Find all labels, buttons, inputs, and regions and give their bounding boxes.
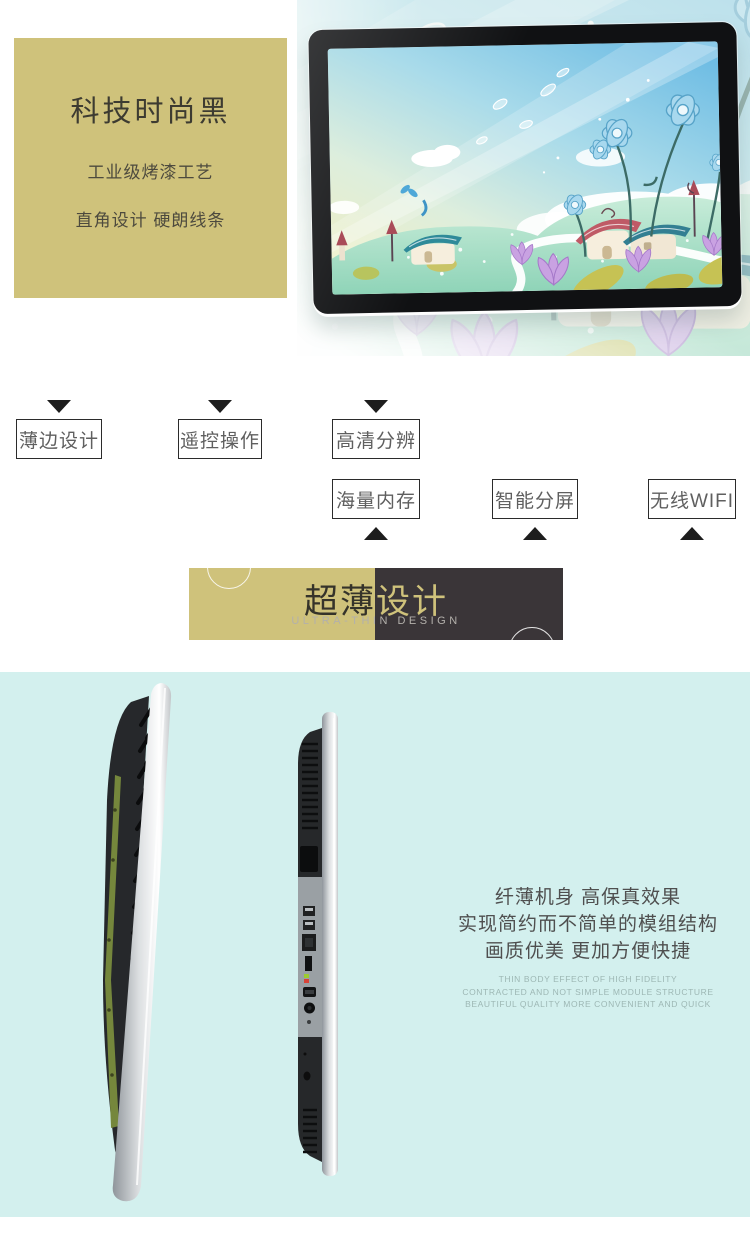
monitor-front-view: [308, 22, 741, 314]
thin-cn-line-1: 纤薄机身 高保真效果: [448, 884, 728, 911]
feature-tag-wifi: 无线WIFI: [648, 479, 736, 519]
banner-subtitle: ULTRA-THIN DESIGN: [189, 615, 563, 627]
down-triangle-icon: [47, 400, 71, 413]
thin-cn-line-3: 画质优美 更加方便快捷: [448, 938, 728, 965]
black-style-panel: 科技时尚黑 工业级烤漆工艺 直角设计 硬朗线条: [14, 38, 287, 298]
up-triangle-icon: [364, 527, 388, 540]
panel-subtitle-2: 直角设计 硬朗线条: [14, 206, 287, 231]
up-triangle-icon: [523, 527, 547, 540]
thin-body-section: 纤薄机身 高保真效果 实现简约而不简单的模组结构 画质优美 更加方便快捷 THI…: [0, 672, 750, 1217]
device-side-view-ports: [290, 710, 346, 1180]
card-slot-icon: [305, 956, 312, 971]
device-side-view-tilted: [95, 680, 190, 1210]
down-triangle-icon: [364, 400, 388, 413]
ultra-thin-banner: 超薄设计 ULTRA-THIN DESIGN: [189, 568, 563, 640]
feature-tag-label: 海量内存: [336, 486, 416, 513]
feature-tag-hd: 高清分辨: [332, 419, 420, 459]
feature-tag-label: 薄边设计: [19, 426, 99, 453]
monitor-screen: [328, 41, 723, 294]
feature-tag-label: 无线WIFI: [650, 486, 734, 513]
feature-tag-remote: 遥控操作: [178, 419, 262, 459]
thin-en-line-3: BEAUTIFUL QUALITY MORE CONVENIENT AND QU…: [448, 998, 728, 1011]
feature-tag-thin-edge: 薄边设计: [16, 419, 102, 459]
product-detail-page: 科技时尚黑 工业级烤漆工艺 直角设计 硬朗线条 薄边设计 遥控操作 高清分辨 海…: [0, 0, 750, 1235]
thin-en-line-1: THIN BODY EFFECT OF HIGH FIDELITY: [448, 973, 728, 986]
status-led-red: [304, 979, 309, 983]
thin-cn-line-2: 实现简约而不简单的模组结构: [448, 911, 728, 938]
feature-tag-label: 遥控操作: [180, 426, 260, 453]
feature-tag-splitscreen: 智能分屏: [492, 479, 578, 519]
status-led-green: [304, 974, 309, 978]
feature-tag-label: 高清分辨: [336, 426, 416, 453]
feature-tag-label: 智能分屏: [495, 486, 575, 513]
thin-en-line-2: CONTRACTED AND NOT SIMPLE MODULE STRUCTU…: [448, 986, 728, 999]
thin-description-block: 纤薄机身 高保真效果 实现简约而不简单的模组结构 画质优美 更加方便快捷 THI…: [448, 884, 728, 1011]
panel-title: 科技时尚黑: [14, 38, 287, 130]
hero-illustration: [297, 0, 750, 356]
up-triangle-icon: [680, 527, 704, 540]
feature-tag-memory: 海量内存: [332, 479, 420, 519]
down-triangle-icon: [208, 400, 232, 413]
vent-recess: [300, 846, 318, 872]
panel-subtitle-1: 工业级烤漆工艺: [14, 158, 287, 183]
